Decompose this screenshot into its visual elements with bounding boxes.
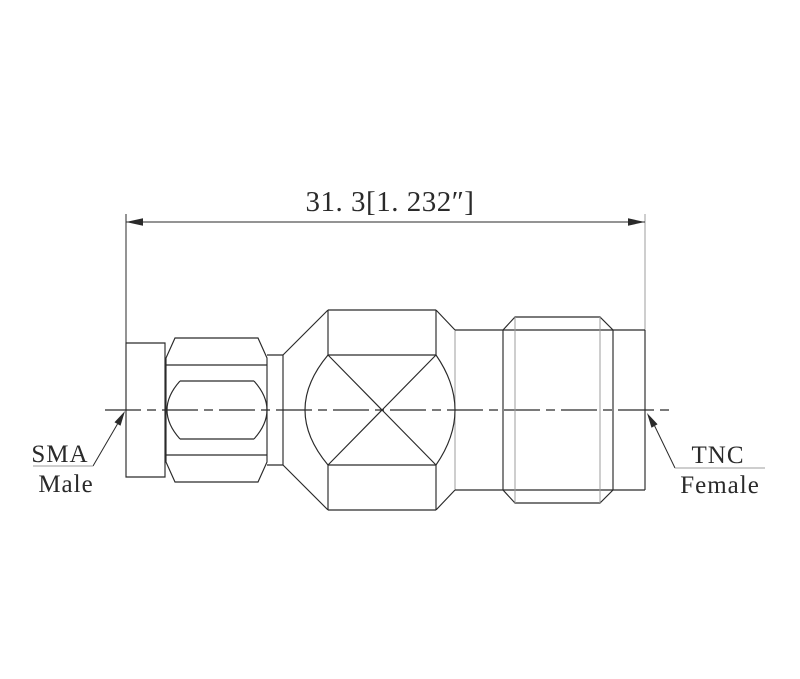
sma-label-line1: SMA (31, 441, 88, 468)
tnc-label-line1: TNC (692, 442, 745, 469)
tnc-callout: TNC Female (647, 413, 765, 499)
technical-drawing-canvas: 31. 3[1. 232″] (0, 0, 800, 679)
sma-callout: SMA Male (31, 411, 125, 498)
tnc-label-line2: Female (680, 472, 760, 499)
sma-leader-line (93, 424, 118, 466)
dimension-arrow-right (628, 218, 645, 225)
sma-label-line2: Male (38, 471, 93, 498)
tnc-leader-line (655, 426, 675, 468)
tnc-leader-arrow (647, 413, 658, 428)
dimension-arrow-left (126, 218, 143, 225)
sma-leader-arrow (115, 411, 126, 426)
dimension-text: 31. 3[1. 232″] (306, 186, 475, 218)
adapter-drawing: 31. 3[1. 232″] (0, 0, 800, 679)
